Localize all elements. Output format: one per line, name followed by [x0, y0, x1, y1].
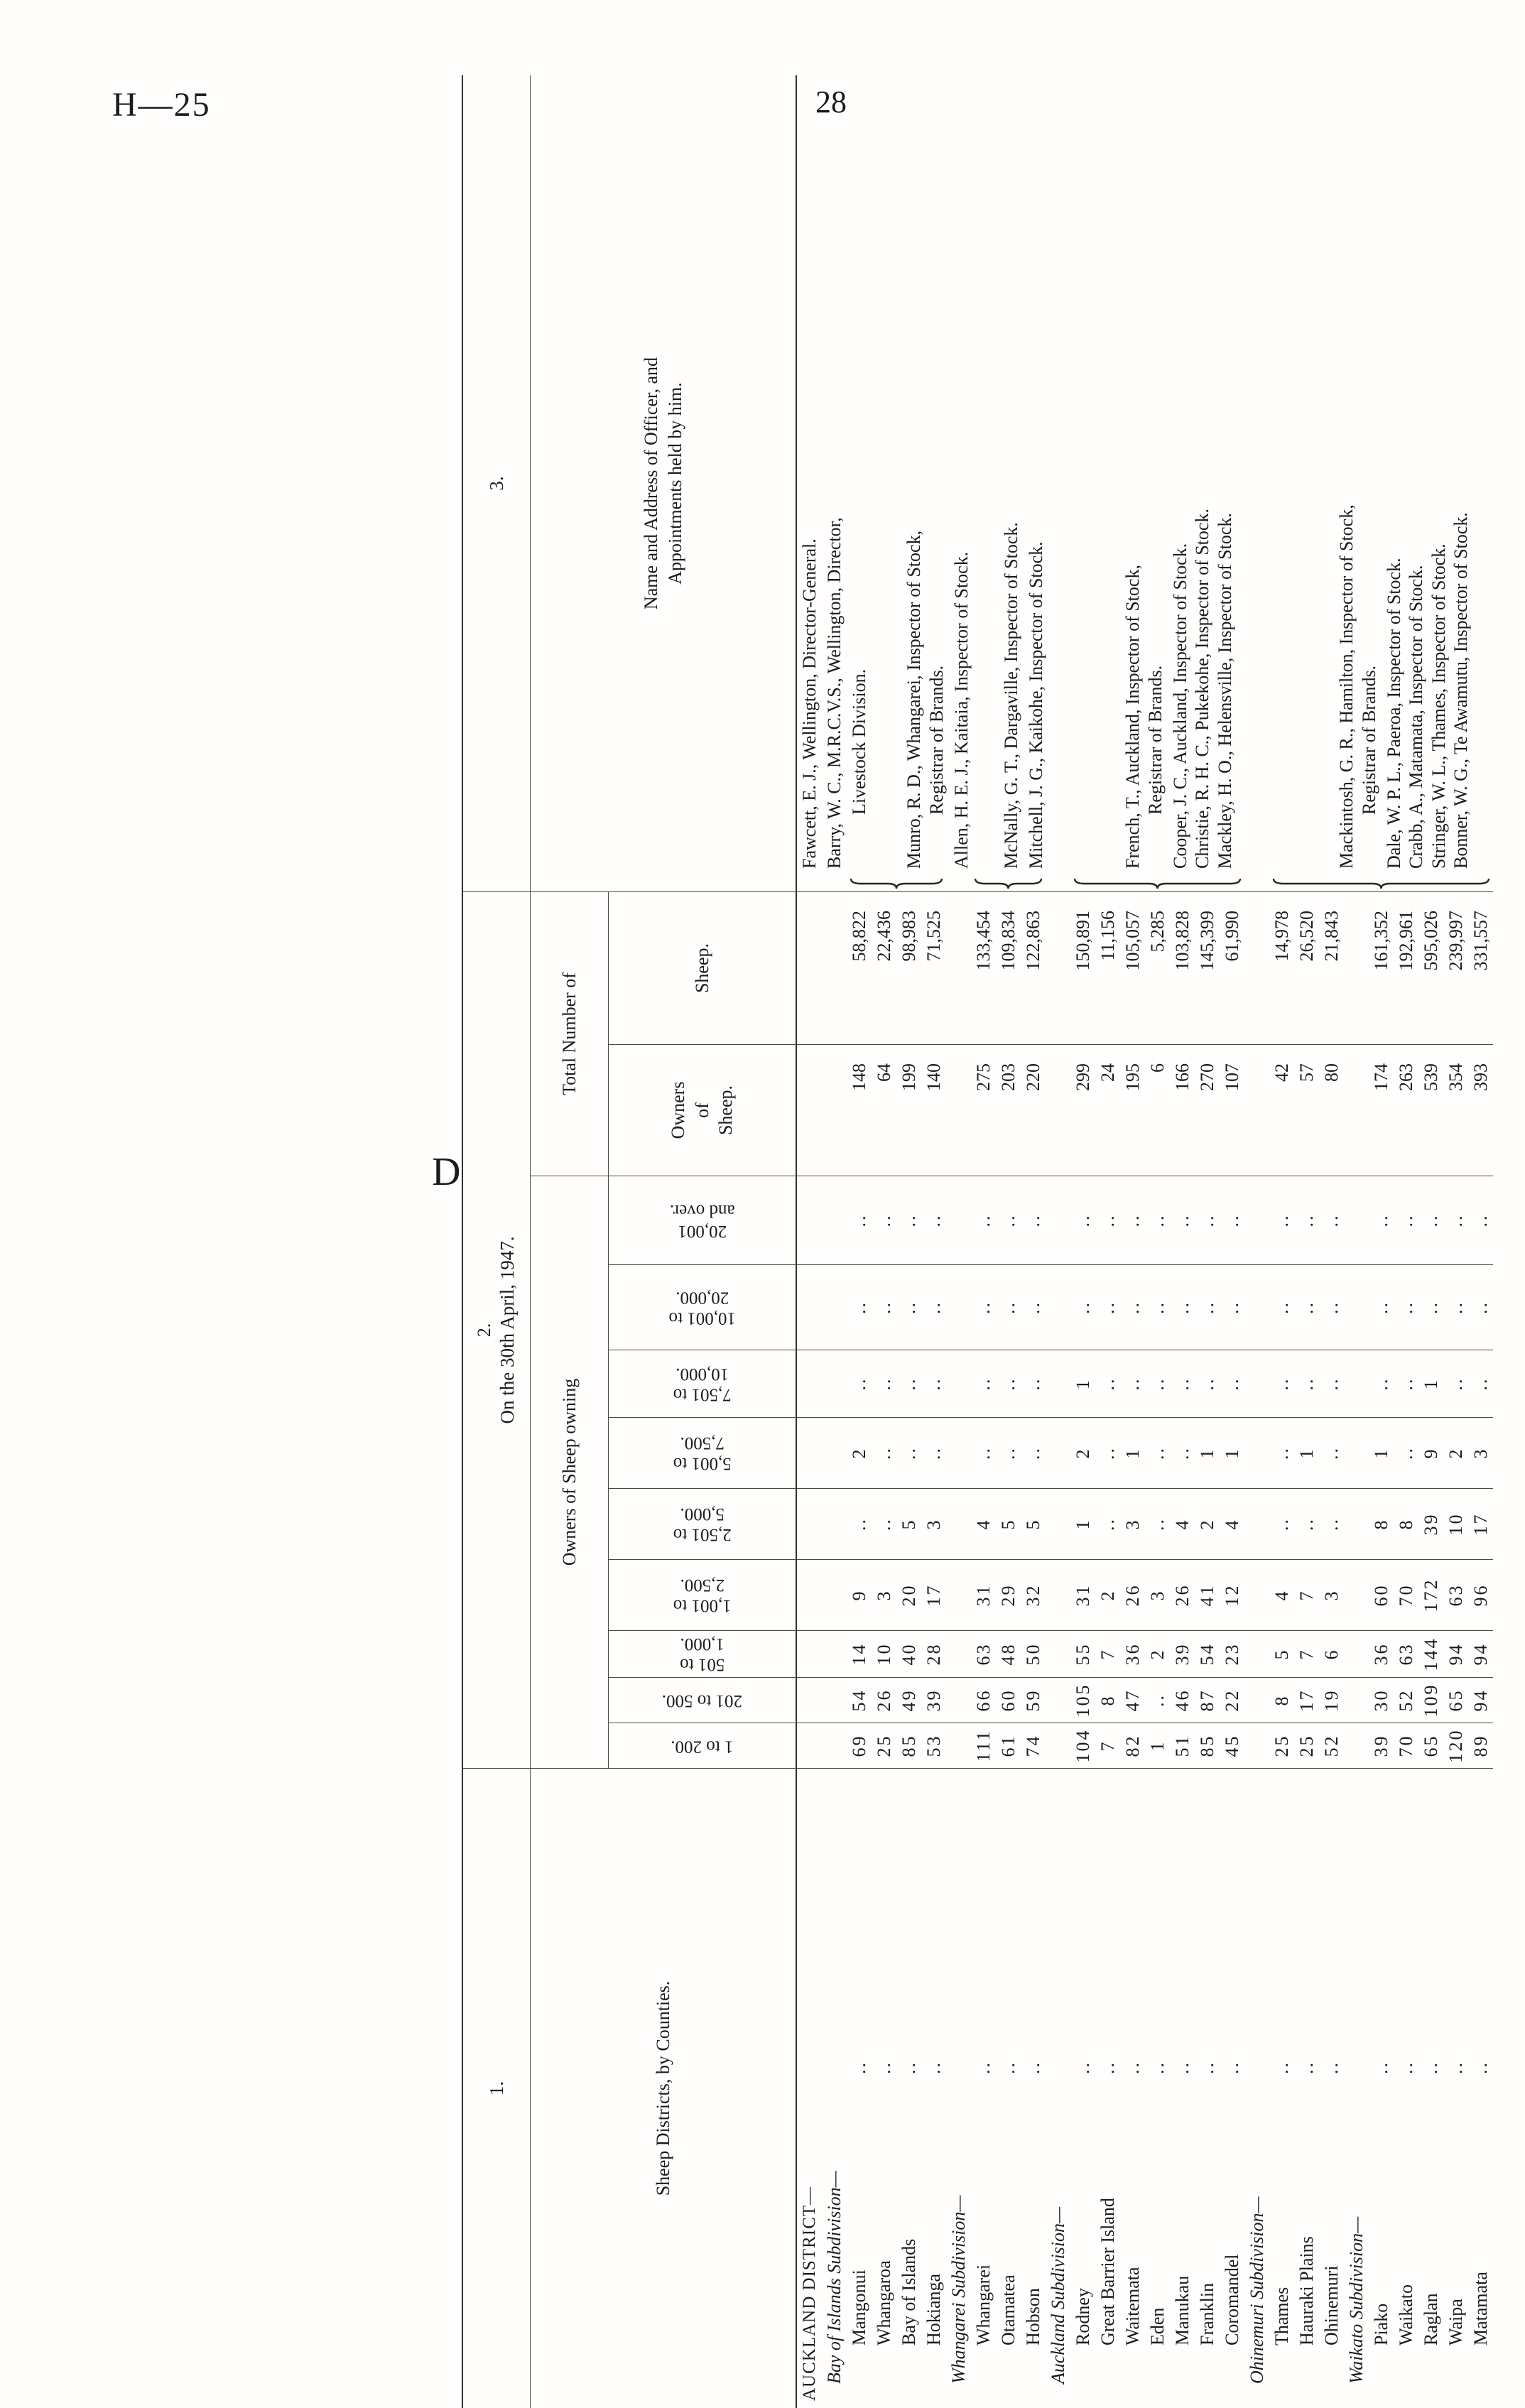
value-cell: .. [1294, 1176, 1319, 1265]
value-cell: 1 [1418, 1350, 1443, 1418]
empty-cell [797, 1631, 822, 1678]
value-cell: .. [1195, 1176, 1220, 1265]
sheep-total-cell: 105,057 [1120, 892, 1145, 1045]
value-cell: .. [1394, 1176, 1418, 1265]
value-cell: 29 [996, 1560, 1021, 1631]
row-label: Manukau [1172, 2276, 1193, 2345]
cell-value: .. [998, 1377, 1019, 1391]
row-label: Franklin [1197, 2283, 1217, 2345]
cell-value: .. [1073, 1301, 1093, 1314]
leader-dots: .. [896, 2061, 921, 2074]
cell-value: 53 [923, 1735, 944, 1757]
leader-dots: .. [847, 2061, 872, 2074]
empty-cell [1046, 1176, 1070, 1265]
cell-value: .. [998, 1214, 1019, 1227]
empty-cell [822, 1631, 847, 1678]
value-cell: .. [1095, 1418, 1120, 1489]
range-header-label: 7,501 to 10,000. [673, 1363, 732, 1404]
value-cell: 46 [1170, 1678, 1195, 1723]
value-cell: .. [1170, 1350, 1195, 1418]
cell-value: 9 [849, 1590, 869, 1601]
value-cell: 8 [1394, 1489, 1418, 1560]
value-cell: 70 [1394, 1560, 1418, 1631]
cell-value: 1 [1296, 1448, 1317, 1459]
owners-total-cell: 42 [1269, 1045, 1294, 1176]
document-reference: H—25 [112, 85, 211, 124]
empty-cell [822, 892, 847, 1045]
cell-value: 47 [1122, 1689, 1143, 1712]
empty-cell [1244, 1045, 1269, 1176]
officer-name: Allen, H. E. J., Kaitaia, Inspector of S… [951, 552, 972, 869]
owners-total: 6 [1147, 1063, 1168, 1073]
column-header: Name and Address of Officer, and Appoint… [639, 357, 688, 609]
row-label: Ohinemuri Subdivision— [1247, 2196, 1267, 2384]
owners-total: 195 [1122, 1063, 1143, 1091]
cell-value: 9 [1421, 1448, 1441, 1459]
cell-value: .. [1445, 1301, 1466, 1314]
empty-cell [946, 1678, 971, 1723]
value-cell: 45 [1220, 1723, 1244, 1769]
value-cell: 25 [1294, 1723, 1319, 1769]
cell-value: 54 [1197, 1643, 1217, 1666]
owners-total-cell: 140 [921, 1045, 946, 1176]
value-cell: .. [1120, 1350, 1145, 1418]
empty-cell [797, 1723, 822, 1769]
value-cell: 5 [896, 1489, 921, 1560]
cell-value: 7 [1097, 1649, 1118, 1660]
owners-total: 24 [1097, 1063, 1118, 1082]
leader-dots: .. [1070, 2061, 1095, 2074]
empty-cell [946, 1418, 971, 1489]
sheep-total: 11,156 [1097, 911, 1118, 961]
value-cell: .. [1443, 1265, 1468, 1350]
cell-value: .. [1023, 1214, 1043, 1227]
value-cell: 8 [1095, 1678, 1120, 1723]
total-sheep-header: Sheep. [609, 892, 797, 1045]
value-cell: 2 [1145, 1631, 1170, 1678]
value-cell: 36 [1120, 1631, 1145, 1678]
value-cell: .. [1443, 1176, 1468, 1265]
cell-value: 87 [1197, 1689, 1217, 1712]
empty-cell [1344, 1045, 1369, 1176]
value-cell: .. [1443, 1350, 1468, 1418]
owners-total-cell: 166 [1170, 1045, 1195, 1176]
empty-cell [1344, 1176, 1369, 1265]
value-cell: .. [996, 1176, 1021, 1265]
value-cell: 2 [1443, 1418, 1468, 1489]
sheep-total-cell: 161,352 [1369, 892, 1394, 1045]
cell-value: .. [1470, 1214, 1491, 1227]
value-cell: 3 [1468, 1418, 1493, 1489]
value-cell: 9 [847, 1560, 872, 1631]
value-cell: 8 [1269, 1678, 1294, 1723]
county-row-label: Piako.. [1369, 1769, 1394, 2408]
column-header: Sheep. [690, 943, 715, 993]
cell-value: .. [973, 1446, 994, 1460]
cell-value: .. [1445, 1214, 1466, 1227]
value-cell: .. [921, 1350, 946, 1418]
value-cell: 10 [872, 1631, 896, 1678]
leader-dots: .. [872, 2061, 896, 2074]
value-cell: 1 [1145, 1723, 1170, 1769]
cell-value: .. [874, 1446, 894, 1460]
value-cell: 9 [1418, 1418, 1443, 1489]
cell-value: .. [1147, 1446, 1168, 1460]
value-cell: 87 [1195, 1678, 1220, 1723]
cell-value: .. [1470, 1377, 1491, 1391]
cell-value: .. [1371, 1214, 1391, 1227]
value-cell: 52 [1394, 1678, 1418, 1723]
county-row-label: Matamata.. [1468, 1769, 1493, 2408]
officer-name: Mackley, H. O., Helensville, Inspector o… [1215, 513, 1236, 869]
officer-name: Fawcett, E. J., Wellington, Director-Gen… [799, 538, 820, 869]
value-cell: 39 [1418, 1489, 1443, 1560]
value-cell: 5 [996, 1489, 1021, 1560]
owners-total-cell: 80 [1319, 1045, 1344, 1176]
empty-cell [1244, 1176, 1269, 1265]
cell-value: .. [1023, 1377, 1043, 1391]
cell-value: 28 [923, 1643, 944, 1666]
value-cell: .. [1294, 1489, 1319, 1560]
value-cell: .. [1170, 1176, 1195, 1265]
value-cell: .. [1394, 1350, 1418, 1418]
sheep-total: 61,990 [1222, 911, 1242, 962]
cell-value: .. [1222, 1377, 1242, 1391]
cell-value: 52 [1396, 1689, 1416, 1712]
sheep-total-cell: 5,285 [1145, 892, 1170, 1045]
value-cell: .. [1170, 1418, 1195, 1489]
empty-cell [1344, 1723, 1369, 1769]
sheep-total: 103,828 [1172, 911, 1193, 971]
empty-cell [797, 1176, 822, 1265]
subdivision-row-label: Whangarei Subdivision— [946, 1769, 971, 2408]
range-header: 1,001 to 2,500. [609, 1560, 797, 1631]
subdivision-row-label: Bay of Islands Subdivision— [822, 1769, 847, 2408]
sheep-total-cell: 103,828 [1170, 892, 1195, 1045]
cell-value: .. [1122, 1214, 1143, 1227]
cell-value: 48 [998, 1643, 1019, 1666]
range-header: 201 to 500. [609, 1678, 797, 1723]
cell-value: 1 [1122, 1448, 1143, 1459]
sheep-total: 150,891 [1073, 911, 1093, 971]
section-label: 3. [486, 476, 508, 490]
cell-value: .. [1147, 1517, 1168, 1531]
row-label: Hokianga [923, 2274, 944, 2345]
value-cell: .. [1394, 1265, 1418, 1350]
cell-value: 25 [1296, 1735, 1317, 1757]
value-cell: 1 [1070, 1489, 1095, 1560]
value-cell: .. [921, 1176, 946, 1265]
cell-value: .. [1470, 1301, 1491, 1314]
value-cell: 65 [1443, 1678, 1468, 1723]
value-cell: .. [1468, 1176, 1493, 1265]
cell-value: 85 [1197, 1735, 1217, 1757]
cell-value: 19 [1321, 1689, 1342, 1712]
empty-cell [822, 1265, 847, 1350]
cell-value: 26 [1122, 1584, 1143, 1607]
counties-column-header: Sheep Districts, by Counties. [531, 1769, 797, 2408]
row-label: Raglan [1421, 2293, 1441, 2345]
sheep-total-cell: 109,834 [996, 892, 1021, 1045]
cell-value: .. [899, 1446, 919, 1460]
value-cell: 4 [1269, 1560, 1294, 1631]
cell-value: 8 [1396, 1519, 1416, 1530]
county-row-label: Whangaroa.. [872, 1769, 896, 2408]
column-header: Owners of Sheep. [666, 1082, 738, 1139]
cell-value: 94 [1470, 1689, 1491, 1712]
cell-value: 5 [998, 1519, 1019, 1530]
owners-total-cell: 270 [1195, 1045, 1220, 1176]
cell-value: .. [1296, 1301, 1317, 1314]
value-cell: 31 [971, 1560, 996, 1631]
row-label: Bay of Islands [899, 2239, 919, 2345]
cell-value: .. [1097, 1301, 1118, 1314]
cell-value: .. [1172, 1214, 1193, 1227]
leader-dots: .. [1468, 2061, 1493, 2074]
value-cell: .. [896, 1418, 921, 1489]
value-cell: .. [1394, 1418, 1418, 1489]
county-row-label: Coromandel.. [1220, 1769, 1244, 2408]
row-label: Otamatea [998, 2274, 1019, 2345]
value-cell: .. [1269, 1350, 1294, 1418]
value-cell: 19 [1319, 1678, 1344, 1723]
cell-value: .. [923, 1377, 944, 1391]
owners-total: 107 [1222, 1063, 1242, 1091]
empty-cell [946, 1176, 971, 1265]
cell-value: 111 [973, 1729, 994, 1762]
sheep-total-cell: 11,156 [1095, 892, 1120, 1045]
value-cell: 63 [1394, 1631, 1418, 1678]
value-cell: 5 [1021, 1489, 1046, 1560]
cell-value: .. [849, 1377, 869, 1391]
value-cell: 2 [1070, 1418, 1095, 1489]
value-cell: .. [971, 1176, 996, 1265]
cell-value: 104 [1073, 1729, 1093, 1763]
leader-dots: .. [996, 2061, 1021, 2074]
county-row-label: Raglan.. [1418, 1769, 1443, 2408]
cell-value: 32 [1023, 1584, 1043, 1607]
officer-name: Mackintosh, G. R., Hamilton, Inspector o… [1336, 504, 1357, 869]
range-header-label: 1 to 200. [671, 1735, 733, 1756]
sheep-total: 98,983 [899, 911, 919, 962]
cell-value: .. [899, 1377, 919, 1391]
leader-dots: .. [1021, 2061, 1046, 2074]
value-cell: 54 [847, 1678, 872, 1723]
empty-cell [1046, 1723, 1070, 1769]
cell-value: 55 [1073, 1643, 1093, 1666]
cell-value: 36 [1122, 1643, 1143, 1666]
value-cell: 51 [1170, 1723, 1195, 1769]
owners-group-header: Owners of Sheep owning [531, 1176, 609, 1769]
value-cell: 105 [1070, 1678, 1095, 1723]
cell-value: 1 [1073, 1519, 1093, 1530]
cell-value: .. [1321, 1446, 1342, 1460]
value-cell: .. [1021, 1176, 1046, 1265]
value-cell: .. [971, 1350, 996, 1418]
cell-value: 70 [1396, 1735, 1416, 1757]
owners-total-cell: 275 [971, 1045, 996, 1176]
value-cell: 36 [1369, 1631, 1394, 1678]
cell-value: .. [899, 1301, 919, 1314]
value-cell: 2 [1195, 1489, 1220, 1560]
owners-total: 275 [973, 1063, 994, 1091]
cell-value: 8 [1097, 1695, 1118, 1706]
value-cell: .. [1468, 1265, 1493, 1350]
cell-value: 60 [1371, 1584, 1391, 1607]
row-label: Coromandel [1222, 2254, 1242, 2345]
section-label-3: 3. [463, 75, 531, 892]
cell-value: .. [1097, 1517, 1118, 1531]
empty-cell [1344, 1265, 1369, 1350]
cell-value: 51 [1172, 1735, 1193, 1757]
value-cell: 5 [1269, 1631, 1294, 1678]
value-cell: 70 [1394, 1723, 1418, 1769]
value-cell: 172 [1418, 1560, 1443, 1631]
leader-dots: .. [1369, 2061, 1394, 2074]
cell-value: 66 [973, 1689, 994, 1712]
empty-cell [797, 892, 822, 1045]
cell-value: .. [1271, 1446, 1292, 1460]
cell-value: 14 [849, 1643, 869, 1666]
sheep-total-cell: 26,520 [1294, 892, 1319, 1045]
value-cell: .. [1294, 1265, 1319, 1350]
cell-value: .. [923, 1214, 944, 1227]
cell-value: 36 [1371, 1643, 1391, 1666]
empty-cell [1244, 1723, 1269, 1769]
sheep-total: 71,525 [923, 911, 944, 962]
value-cell: .. [1319, 1350, 1344, 1418]
value-cell: 39 [1369, 1723, 1394, 1769]
value-cell: 1 [1369, 1418, 1394, 1489]
value-cell: .. [1468, 1350, 1493, 1418]
cell-value: 2 [1445, 1448, 1466, 1459]
value-cell: .. [1319, 1418, 1344, 1489]
cell-value: .. [1421, 1214, 1441, 1227]
value-cell: 3 [1145, 1560, 1170, 1631]
empty-cell [1344, 1560, 1369, 1631]
empty-cell [1244, 1265, 1269, 1350]
value-cell: 17 [921, 1560, 946, 1631]
officer-names-cell: Fawcett, E. J., Wellington, Director-Gen… [797, 75, 1493, 892]
empty-cell [946, 1045, 971, 1176]
cell-value: .. [1197, 1377, 1217, 1391]
value-cell: 26 [1170, 1560, 1195, 1631]
cell-value: 39 [1371, 1735, 1391, 1757]
empty-cell [822, 1678, 847, 1723]
value-cell: 69 [847, 1723, 872, 1769]
empty-cell [1046, 1489, 1070, 1560]
subdivision-row-label: Ohinemuri Subdivision— [1244, 1769, 1269, 2408]
value-cell: 89 [1468, 1723, 1493, 1769]
officer-name: Christie, R. H. C., Pukekohe, Inspector … [1192, 509, 1213, 869]
brace-icon [850, 877, 948, 890]
value-cell: .. [1220, 1265, 1244, 1350]
value-cell: 7 [1294, 1560, 1319, 1631]
value-cell: .. [1418, 1176, 1443, 1265]
owners-total: 64 [874, 1063, 894, 1082]
cell-value: .. [1445, 1377, 1466, 1391]
cell-value: 52 [1321, 1735, 1342, 1757]
value-cell: 2 [847, 1418, 872, 1489]
cell-value: 26 [1172, 1584, 1193, 1607]
cell-value: .. [1396, 1377, 1416, 1391]
sheep-total: 192,961 [1396, 911, 1416, 971]
owners-total-cell: 174 [1369, 1045, 1394, 1176]
cell-value: .. [973, 1377, 994, 1391]
value-cell: .. [1195, 1350, 1220, 1418]
cell-value: 105 [1073, 1683, 1093, 1718]
officer-name: McNally, G. T., Dargaville, Inspector of… [1001, 522, 1022, 869]
cell-value: 2 [1097, 1590, 1118, 1601]
empty-cell [1244, 1678, 1269, 1723]
county-row-label: Rodney.. [1070, 1769, 1095, 2408]
cell-value: 96 [1470, 1584, 1491, 1607]
cell-value: .. [1147, 1214, 1168, 1227]
value-cell: .. [1294, 1350, 1319, 1418]
value-cell: 63 [1443, 1560, 1468, 1631]
empty-cell [946, 1560, 971, 1631]
cell-value: 4 [1271, 1590, 1292, 1601]
cell-value: 1 [1371, 1448, 1391, 1459]
value-cell: 3 [872, 1560, 896, 1631]
value-cell: .. [1319, 1176, 1344, 1265]
empty-cell [1046, 1418, 1070, 1489]
county-row-label: Mangonui.. [847, 1769, 872, 2408]
value-cell: .. [971, 1418, 996, 1489]
owners-total: 166 [1172, 1063, 1193, 1091]
cell-value: 41 [1197, 1584, 1217, 1607]
sheep-total-cell: 22,436 [872, 892, 896, 1045]
empty-cell [1344, 1418, 1369, 1489]
value-cell: 31 [1070, 1560, 1095, 1631]
row-label: Waitemata [1122, 2267, 1143, 2345]
cell-value: 1 [1421, 1378, 1441, 1389]
empty-cell [797, 1489, 822, 1560]
empty-cell [822, 1489, 847, 1560]
row-label: Whangarei Subdivision— [948, 2195, 969, 2384]
value-cell: 59 [1021, 1678, 1046, 1723]
value-cell: 1 [1294, 1418, 1319, 1489]
county-row-label: Thames.. [1269, 1769, 1294, 2408]
county-row-label: Hauraki Plains.. [1294, 1769, 1319, 2408]
value-cell: .. [1269, 1489, 1294, 1560]
officer-name: Bonner, W. G., Te Awamutu, Inspector of … [1450, 512, 1472, 869]
sheep-total-cell: 71,525 [921, 892, 946, 1045]
empty-cell [1046, 1631, 1070, 1678]
value-cell: 4 [971, 1489, 996, 1560]
value-cell: 96 [1468, 1560, 1493, 1631]
owners-total-cell: 354 [1443, 1045, 1468, 1176]
empty-cell [946, 1489, 971, 1560]
owners-total: 174 [1371, 1063, 1391, 1091]
row-label: AUCKLAND DISTRICT— [800, 2186, 819, 2401]
empty-cell [946, 892, 971, 1045]
cell-value: .. [1172, 1301, 1193, 1314]
range-header-label: 501 to 1,000. [680, 1634, 724, 1675]
officer-name: Livestock Division. [849, 669, 870, 815]
value-cell: 3 [1319, 1560, 1344, 1631]
sheep-total-cell: 133,454 [971, 892, 996, 1045]
cell-value: .. [973, 1301, 994, 1314]
range-header-label: 201 to 500. [662, 1690, 742, 1710]
cell-value: 45 [1222, 1735, 1242, 1757]
value-cell: .. [872, 1489, 896, 1560]
cell-value: 3 [1122, 1519, 1143, 1530]
value-cell: .. [1145, 1265, 1170, 1350]
value-cell: 40 [896, 1631, 921, 1678]
row-label: Auckland Subdivision— [1048, 2207, 1068, 2384]
value-cell: .. [847, 1350, 872, 1418]
